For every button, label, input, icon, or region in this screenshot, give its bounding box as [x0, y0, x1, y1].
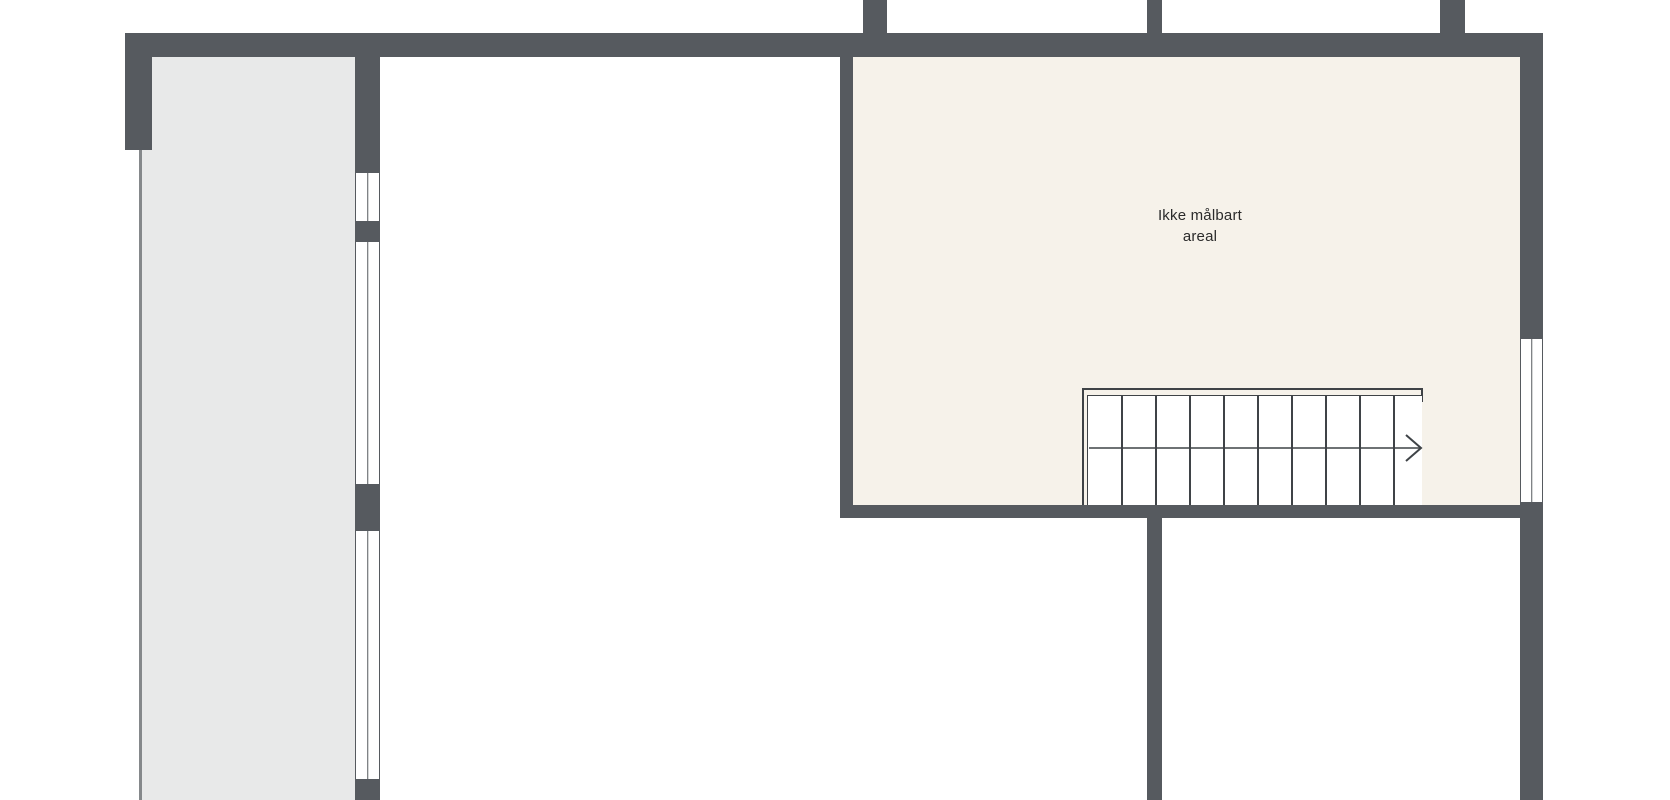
floorplan-canvas: Ikke målbart areal — [0, 0, 1670, 800]
room-label-line1: Ikke målbart — [1100, 205, 1300, 226]
window-divider-top-pane-line — [367, 173, 369, 221]
wall-left-exterior — [125, 33, 152, 150]
wall-top-exterior — [125, 33, 1543, 57]
window-divider-bottom — [355, 530, 380, 780]
stair-direction-arrow — [1087, 430, 1427, 466]
window-divider-middle — [355, 241, 380, 485]
wall-stub-right — [1440, 0, 1465, 35]
room-side-room — [141, 57, 355, 800]
wall-divider-mid — [355, 222, 380, 241]
wall-stub-left — [863, 0, 887, 35]
window-right-wall — [1520, 338, 1543, 503]
wall-right-lower — [1520, 503, 1543, 800]
wall-divider-lower — [355, 485, 380, 530]
wall-room-bottom — [840, 505, 1543, 518]
window-divider-middle-pane-line — [367, 242, 369, 484]
wall-stub-middle — [1147, 0, 1162, 36]
window-divider-top — [355, 172, 380, 222]
wall-room-left — [840, 57, 853, 518]
room-label-line2: areal — [1100, 226, 1300, 247]
wall-center-lower — [1147, 518, 1162, 800]
wall-right-upper — [1520, 57, 1543, 338]
side-room-open-boundary — [139, 150, 142, 800]
window-divider-bottom-pane-line — [367, 531, 369, 779]
room-label-unmeasurable-area: Ikke målbart areal — [1100, 205, 1300, 247]
window-right-wall-pane-line — [1531, 339, 1533, 502]
wall-divider-upper — [355, 57, 380, 172]
wall-divider-bottom — [355, 780, 380, 800]
